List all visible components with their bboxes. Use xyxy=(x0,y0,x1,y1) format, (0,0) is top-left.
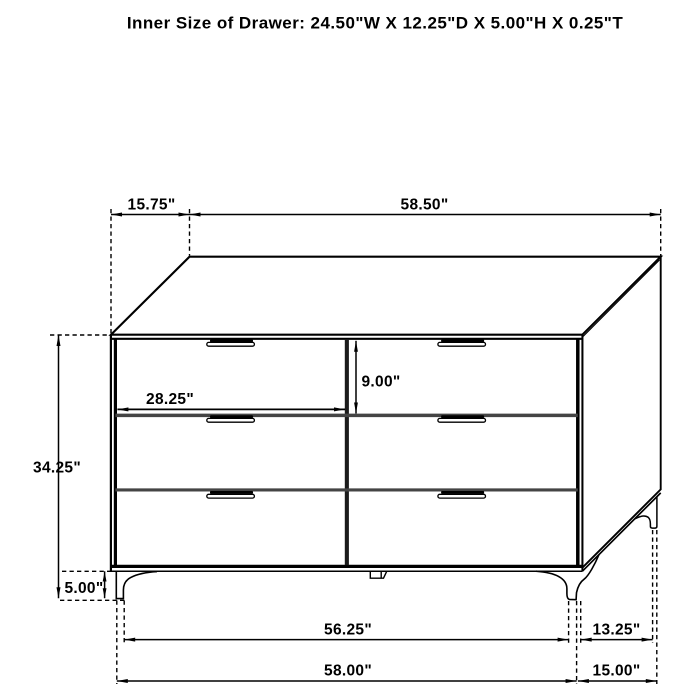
svg-text:58.00": 58.00" xyxy=(324,662,372,679)
svg-text:9.00": 9.00" xyxy=(362,373,401,390)
svg-text:34.25": 34.25" xyxy=(33,460,81,477)
svg-text:Inner Size of Drawer: 24.50"W: Inner Size of Drawer: 24.50"W X 12.25"D … xyxy=(127,14,623,33)
svg-text:58.50": 58.50" xyxy=(401,196,449,213)
svg-text:15.00": 15.00" xyxy=(593,662,641,679)
svg-text:5.00": 5.00" xyxy=(64,580,103,597)
svg-text:28.25": 28.25" xyxy=(146,391,194,408)
svg-text:56.25": 56.25" xyxy=(324,621,372,638)
svg-text:13.25": 13.25" xyxy=(593,621,641,638)
svg-text:15.75": 15.75" xyxy=(128,196,176,213)
